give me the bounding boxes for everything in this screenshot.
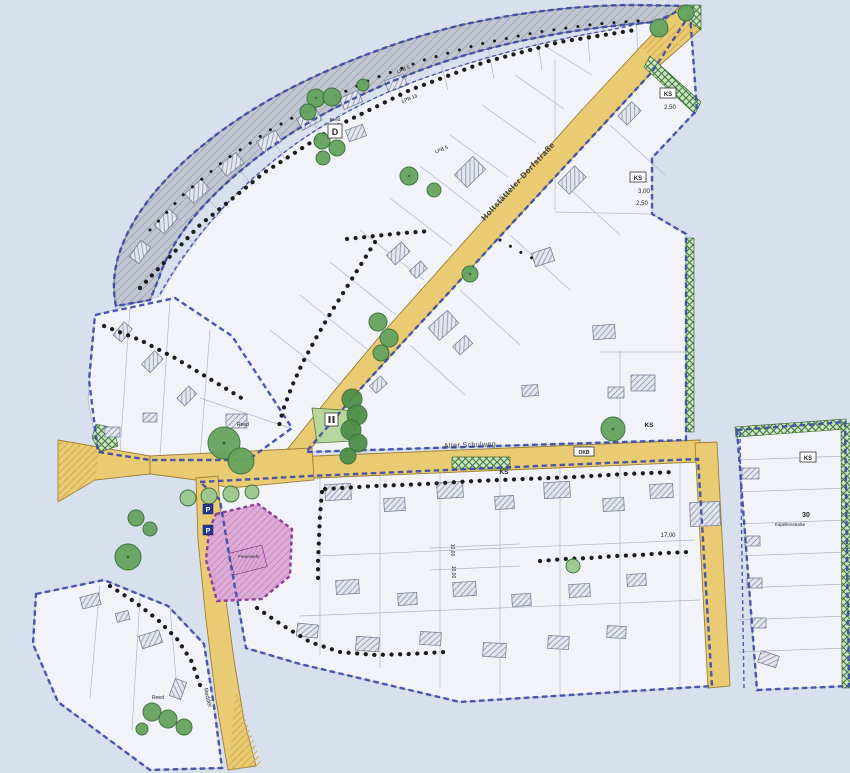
parking-label: P — [206, 507, 211, 514]
building — [631, 375, 655, 391]
building — [512, 593, 532, 606]
building — [569, 583, 591, 597]
building — [544, 481, 571, 498]
dim-2-50: 2,50 — [664, 105, 676, 111]
zoning-plan-map[interactable]: Feuerwehr — [0, 0, 850, 773]
building — [420, 631, 442, 645]
bus-shelter-icon — [325, 413, 338, 426]
building — [143, 413, 157, 422]
building — [398, 592, 418, 605]
ks-label: KS — [644, 422, 654, 429]
building — [356, 636, 380, 652]
dim-17-00: 17,00 — [660, 533, 676, 539]
reed-label: Reed — [237, 422, 249, 428]
reed-label: Reed — [152, 695, 164, 701]
dim-2-50: 2,50 — [636, 201, 648, 207]
dim-10-00: 10,00 — [450, 566, 456, 579]
ks-label: KS — [664, 92, 672, 98]
parcel-30-label: 30 — [802, 512, 810, 519]
d-shelter-label: D — [332, 127, 339, 137]
building — [495, 495, 515, 509]
parking-label: P — [206, 528, 211, 535]
dim-3-00: 3,00 — [638, 189, 650, 195]
building — [603, 497, 625, 511]
building — [384, 497, 406, 511]
building — [105, 427, 120, 437]
okb-label: OKB — [578, 450, 590, 456]
dim-10-00: 10,00 — [449, 544, 455, 557]
building — [608, 387, 624, 398]
building — [325, 483, 352, 500]
building — [522, 384, 539, 396]
ks-label: KS — [634, 176, 642, 182]
street-label-kapellenstrasse: Kapellenstraße — [775, 522, 806, 527]
building — [751, 618, 766, 628]
building — [593, 324, 616, 340]
building — [690, 501, 721, 526]
ks-label: KS — [499, 469, 509, 476]
reed-label: Reed — [330, 117, 341, 122]
building — [437, 481, 464, 498]
building — [745, 536, 760, 546]
building — [336, 579, 360, 594]
ks-label: KS — [804, 456, 812, 462]
building — [742, 468, 759, 479]
building — [483, 642, 507, 657]
building — [627, 573, 647, 586]
plan-canvas[interactable]: Feuerwehr — [0, 0, 850, 773]
building — [548, 635, 570, 649]
building — [607, 626, 627, 639]
pink-area-label: Feuerwehr — [238, 554, 260, 559]
building — [453, 581, 477, 596]
building — [650, 483, 674, 498]
